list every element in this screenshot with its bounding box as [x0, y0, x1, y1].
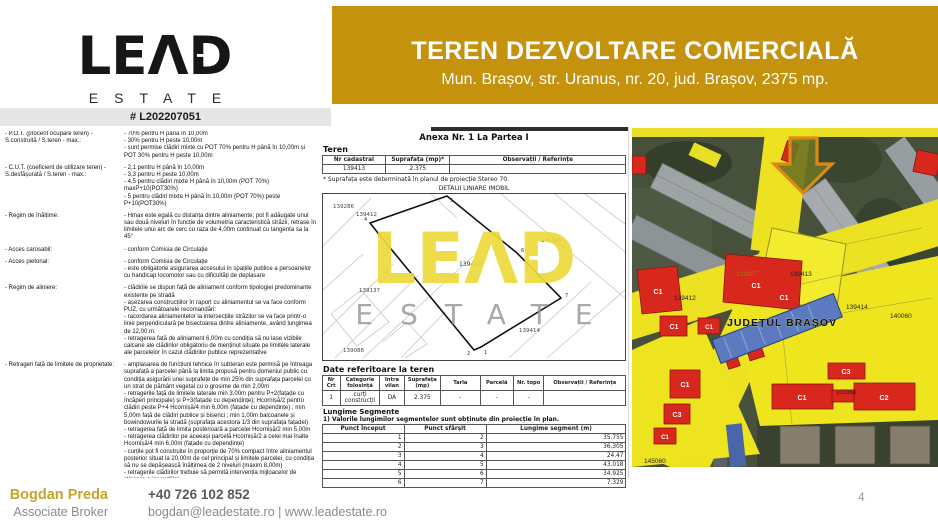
- satellite-map-svg: 139412 139413 139107 139414 140060 10336…: [632, 128, 938, 467]
- regulation-label: - Regim de aliniere:: [5, 285, 119, 357]
- map-label-145060: 145060: [644, 458, 666, 465]
- building-code-c1: C1: [705, 325, 713, 331]
- page-number: 4: [858, 490, 865, 504]
- cell-suprafata: 2.375: [386, 165, 450, 174]
- parcel-plan-svg: 4 3 5 6 7 1 2 139286 139412 139413 14594…: [323, 194, 625, 358]
- vertex-2: 2: [467, 351, 470, 357]
- cell-parcela: -: [480, 391, 513, 406]
- segments-table-row: 2 3 36.305: [322, 443, 626, 452]
- cell-punct-inceput: 4: [322, 461, 404, 470]
- usage-table-header-cell: Observații / Referințe: [544, 376, 626, 391]
- plan-label-139286: 139286: [333, 204, 354, 210]
- land-table-header-cell: Suprafața (mp)*: [386, 156, 450, 165]
- land-section-title: Teren: [323, 145, 628, 154]
- regulation-row: - P.O.T. (procent ocupare teren) - S.con…: [5, 131, 317, 160]
- cell-punct-sfarsit: 7: [404, 479, 486, 488]
- regulation-label: - C.U.T. (coeficient de utilizare teren)…: [5, 165, 119, 208]
- map-label-139413: 139413: [790, 271, 812, 278]
- cell-lungime: 34.925: [486, 470, 626, 479]
- cell-punct-sfarsit: 5: [404, 461, 486, 470]
- building-code-c1: C1: [780, 295, 789, 302]
- map-region-label: JUDEȚUL BRAȘOV: [727, 317, 837, 329]
- building-code-c1: C1: [798, 395, 807, 402]
- regulation-values: - clădirile se dispun față de aliniament…: [119, 285, 317, 357]
- cell-punct-sfarsit: 4: [404, 452, 486, 461]
- satellite-map: 139412 139413 139107 139414 140060 10336…: [632, 128, 938, 467]
- land-table-row: 139413 2.375: [322, 165, 626, 174]
- regulation-values: - amplasarea de funcțiuni tehnice în sub…: [119, 362, 317, 478]
- plan-label-139412: 139412: [356, 212, 377, 218]
- regulation-label: - Regim de înălțime:: [5, 213, 119, 242]
- regulation-label: - Acces carosabil:: [5, 247, 119, 254]
- cell-punct-inceput: 2: [322, 443, 404, 452]
- segments-table-row: 1 2 35.755: [322, 434, 626, 443]
- vertex-6: 6: [521, 248, 524, 254]
- usage-table: Nr CrtCategorie folosințăIntra vilanSupr…: [322, 375, 627, 406]
- usage-table-header: Nr CrtCategorie folosințăIntra vilanSupr…: [322, 376, 626, 391]
- building-code-c1: C1: [654, 289, 663, 296]
- cell-categorie: curți construcții: [340, 391, 380, 406]
- regulation-row: - Regim de aliniere: - clădirile se disp…: [5, 285, 317, 357]
- regulation-row: - Acces carosabil: - conform Comisia de …: [5, 247, 317, 254]
- logo-wordmark: LEΛD→: [70, 30, 240, 83]
- regulation-row: - C.U.T. (coeficient de utilizare teren)…: [5, 165, 317, 208]
- segments-table-header-cell: Lungime segment (m): [486, 425, 626, 434]
- regulation-label: - P.O.T. (procent ocupare teren) - S.con…: [5, 131, 119, 160]
- segments-table-row: 3 4 24.47: [322, 452, 626, 461]
- parcel-plan: 4 3 5 6 7 1 2 139286 139412 139413 14594…: [322, 193, 626, 361]
- row-houses: [780, 426, 930, 464]
- land-table: Nr cadastralSuprafața (mp)*Observații / …: [322, 155, 627, 174]
- surface-footnote: * Suprafața este determinată în planul d…: [323, 176, 628, 183]
- regulation-values: - conform Comisia de Circulație - este o…: [119, 259, 317, 281]
- cell-nr-crt: 1: [322, 391, 340, 406]
- segments-table-header-cell: Punct sfârșit: [404, 425, 486, 434]
- cell-punct-inceput: 5: [322, 470, 404, 479]
- land-table-header-cell: Observații / Referințe: [450, 156, 626, 165]
- cell-intravilan: DA: [380, 391, 404, 406]
- cell-lungime: 36.305: [486, 443, 626, 452]
- regulations-list: - P.O.T. (procent ocupare teren) - S.con…: [5, 131, 317, 478]
- listing-ref-bar: # L202207051: [0, 108, 331, 126]
- usage-table-header-cell: Suprafața (mp): [404, 376, 440, 391]
- segments-table: Punct începutPunct sfârșitLungime segmen…: [322, 424, 627, 488]
- logo-letter-a: Λ: [147, 30, 188, 83]
- plan-label-139413: 139413: [459, 261, 482, 268]
- annex-title: Anexa Nr. 1 La Partea I: [320, 133, 628, 143]
- regulation-values: - conform Comisia de Circulație: [119, 247, 317, 254]
- map-label-140060: 140060: [890, 313, 912, 320]
- logo-letters-le: LE: [77, 30, 147, 83]
- logo-arrow-icon: →: [196, 43, 216, 67]
- subject-parcel-outline: [370, 196, 561, 350]
- building-code-c1: C1: [661, 435, 669, 441]
- broker-role: Associate Broker: [8, 505, 108, 519]
- linear-detail-title: DETALII LINIARE IMOBIL: [320, 185, 628, 192]
- cell-lungime: 35.755: [486, 434, 626, 443]
- segments-table-row: 6 7 7.329: [322, 479, 626, 488]
- listing-slide: LEΛD→ ESTATE TEREN DEZVOLTARE COMERCIALĂ…: [0, 0, 938, 527]
- vertex-3: 3: [386, 236, 389, 242]
- regulation-row: - Regim de înălțime: - Hmax este egală c…: [5, 213, 317, 242]
- regulation-values: - Hmax este egală cu distanța dintre ali…: [119, 213, 317, 242]
- map-label-139107: 139107: [736, 271, 758, 278]
- vertex-5: 5: [450, 198, 453, 204]
- segments-table-header-cell: Punct început: [322, 425, 404, 434]
- regulation-values: - 70% pentru H până în 10,00m - 30% pent…: [119, 131, 317, 160]
- building-code-c3: C3: [842, 369, 851, 376]
- regulation-row: - Retrageri față de limitele de propriet…: [5, 362, 317, 478]
- broker-contact: bogdan@leadestate.ro | www.leadestate.ro: [148, 505, 387, 519]
- usage-table-header-cell: Tarla: [441, 376, 481, 391]
- usage-table-row: 1 curți construcții DA 2.375 - - -: [322, 391, 626, 406]
- regulation-row: - Acces pietonal: - conform Comisia de C…: [5, 259, 317, 281]
- usage-table-header-cell: Nr Crt: [322, 376, 340, 391]
- page-subtitle: Mun. Brașov, str. Uranus, nr. 20, jud. B…: [332, 71, 938, 89]
- cell-lungime: 7.329: [486, 479, 626, 488]
- cell-nr-cadastral: 139413: [322, 165, 386, 174]
- usage-table-header-cell: Parcelă: [480, 376, 513, 391]
- lead-estate-logo: LEΛD→ ESTATE: [70, 30, 240, 106]
- segments-table-header: Punct începutPunct sfârșitLungime segmen…: [322, 425, 626, 434]
- land-data-title: Date referitoare la teren: [323, 365, 628, 374]
- cell-punct-sfarsit: 2: [404, 434, 486, 443]
- building-code-c2: C2: [880, 395, 889, 402]
- cell-observatii: [450, 165, 626, 174]
- building-code-c3: C3: [673, 412, 682, 419]
- building-code-c1: C1: [752, 283, 761, 290]
- plan-label-139137: 139137: [359, 288, 380, 294]
- plan-label-139414: 139414: [519, 328, 540, 334]
- plan-label-139086: 139086: [343, 348, 364, 354]
- land-table-header: Nr cadastralSuprafața (mp)*Observații / …: [322, 156, 626, 165]
- cell-lungime: 24.47: [486, 452, 626, 461]
- cell-punct-inceput: 1: [322, 434, 404, 443]
- cell-punct-sfarsit: 6: [404, 470, 486, 479]
- segments-table-row: 5 6 34.925: [322, 470, 626, 479]
- usage-table-header-cell: Nr. topo: [513, 376, 543, 391]
- regulation-label: - Retrageri față de limitele de propriet…: [5, 362, 119, 478]
- logo-letter-d: D→: [189, 30, 233, 83]
- listing-ref: # L202207051: [130, 111, 201, 123]
- cadastral-document: Anexa Nr. 1 La Partea I Teren Nr cadastr…: [320, 127, 629, 478]
- cell-tarla: -: [441, 391, 481, 406]
- segments-title: Lungime Segmente: [323, 408, 628, 416]
- broker-phone: +40 726 102 852: [148, 487, 250, 502]
- regulation-values: - 2,1 pentru H până în 10,00m - 3,3 pent…: [119, 165, 317, 208]
- map-label-139414: 139414: [846, 304, 868, 311]
- document-scan-edge: [320, 127, 628, 131]
- cell-punct-inceput: 3: [322, 452, 404, 461]
- regulation-label: - Acces pietonal:: [5, 259, 119, 281]
- cell-punct-sfarsit: 3: [404, 443, 486, 452]
- plan-label-145945: 145945: [541, 238, 562, 244]
- map-label-103368: 103368: [836, 390, 857, 396]
- cell-suprafata: 2.375: [404, 391, 440, 406]
- usage-table-header-cell: Categorie folosință: [340, 376, 380, 391]
- page-title: TEREN DEZVOLTARE COMERCIALĂ: [332, 37, 938, 66]
- cell-nr-topo: -: [513, 391, 543, 406]
- header-banner: TEREN DEZVOLTARE COMERCIALĂ Mun. Brașov,…: [332, 6, 938, 104]
- cell-observatii: [544, 391, 626, 406]
- vertex-7: 7: [565, 293, 568, 299]
- vertex-1: 1: [484, 350, 487, 356]
- map-label-139412: 139412: [674, 295, 696, 302]
- building-code-c1: C1: [670, 324, 679, 331]
- cell-lungime: 43.018: [486, 461, 626, 470]
- broker-name: Bogdan Preda: [8, 487, 108, 503]
- logo-estate-text: ESTATE: [70, 90, 240, 106]
- usage-table-header-cell: Intra vilan: [380, 376, 404, 391]
- cell-punct-inceput: 6: [322, 479, 404, 488]
- building-code-c1: C1: [681, 382, 690, 389]
- segments-note: 1) Valorile lungimilor segmentelor sunt …: [323, 416, 628, 423]
- land-table-header-cell: Nr cadastral: [322, 156, 386, 165]
- segments-table-row: 4 5 43.018: [322, 461, 626, 470]
